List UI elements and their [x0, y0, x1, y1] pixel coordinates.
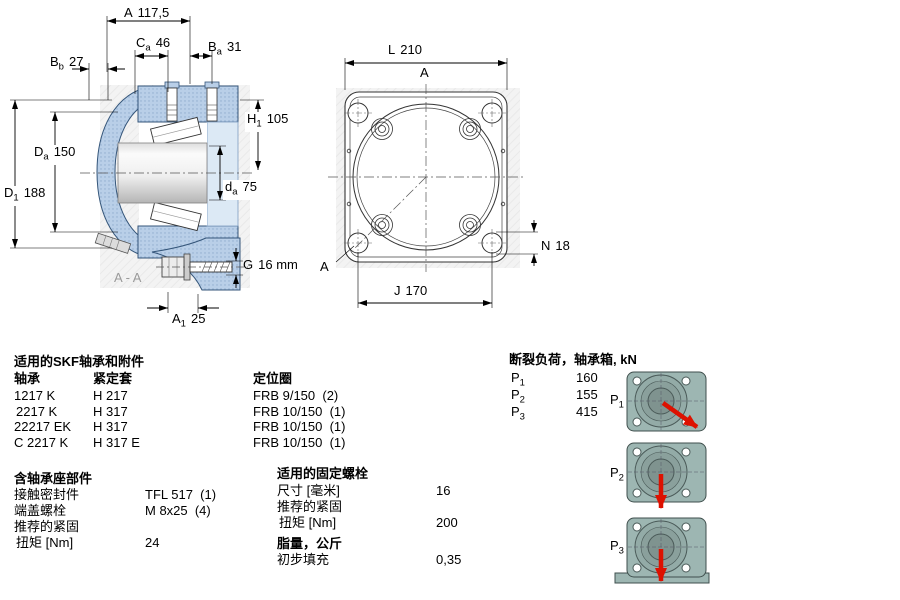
- dim-label-a1: A125: [172, 312, 205, 332]
- load-figure-p2: [627, 443, 706, 508]
- bolt-value: 200: [436, 516, 458, 530]
- load-figure-p1: [627, 372, 706, 431]
- dim-label-da-cap: Da150: [32, 145, 77, 165]
- load-value-p1: 160: [576, 371, 598, 385]
- load-value-p3: 415: [576, 405, 598, 419]
- grease-title: 脂量，公斤: [277, 537, 342, 551]
- bolt-value: 16: [436, 484, 450, 498]
- view-arrow-label-bottom: A: [320, 260, 329, 274]
- figure-label-p1: P1: [610, 393, 624, 413]
- figure-label-p2: P2: [610, 466, 624, 486]
- dim-label-d1: D1188: [2, 186, 47, 206]
- part-label: 扭矩 [Nm]: [16, 536, 73, 550]
- view-arrow-label-top: A: [420, 66, 429, 80]
- ring-cell: FRB 10/150 (1): [253, 436, 346, 450]
- col-header-sleeve: 紧定套: [93, 372, 132, 386]
- dim-label-h1: H1105: [245, 112, 290, 132]
- fixing-bolts-title: 适用的固定螺栓: [277, 467, 368, 481]
- part-label: 端盖螺栓: [14, 504, 66, 518]
- bearings-table-title: 适用的SKF轴承和附件: [14, 355, 144, 369]
- dim-label-a: A117,5: [124, 6, 169, 26]
- bolt-label: 扭矩 [Nm]: [279, 516, 336, 530]
- col-header-bearing: 轴承: [14, 372, 40, 386]
- part-value: TFL 517 (1): [145, 488, 216, 502]
- part-value: 24: [145, 536, 159, 550]
- load-value-p2: 155: [576, 388, 598, 402]
- bearing-cell: 22217 EK: [14, 420, 71, 434]
- dim-label-bb: Bb27: [50, 55, 83, 75]
- sleeve-cell: H 217: [93, 389, 128, 403]
- dim-label-l: L210: [388, 43, 422, 63]
- ring-cell: FRB 9/150 (2): [253, 389, 338, 403]
- grease-label: 初步填充: [277, 553, 329, 567]
- sleeve-cell: H 317: [93, 420, 128, 434]
- dim-label-ca: Ca46: [136, 36, 170, 56]
- section-view-label: A - A: [114, 271, 141, 285]
- load-figure-p3: [615, 518, 709, 583]
- housing-back-wall: [207, 122, 238, 226]
- col-header-ring: 定位圈: [253, 372, 292, 386]
- dim-label-da-shaft: da75: [223, 180, 259, 200]
- bolt-label: 推荐的紧固: [277, 500, 342, 514]
- dim-label-g: G16 mm: [243, 258, 298, 278]
- part-value: M 8x25 (4): [145, 504, 211, 518]
- housing-cap: [138, 86, 238, 122]
- sleeve-cell: H 317: [93, 405, 128, 419]
- bolt-label: 尺寸 [毫米]: [277, 484, 340, 498]
- dim-label-j: J170: [394, 284, 427, 304]
- grease-value: 0,35: [436, 553, 461, 567]
- load-direction-figures: [615, 372, 709, 583]
- figure-label-p3: P3: [610, 539, 624, 559]
- dim-label-n: N18: [541, 239, 570, 259]
- dim-label-ba: Ba31: [208, 40, 241, 60]
- part-label: 接触密封件: [14, 488, 79, 502]
- flange-face-drawing: [328, 58, 538, 308]
- sleeve-cell: H 317 E: [93, 436, 140, 450]
- housing-parts-title: 含轴承座部件: [14, 472, 92, 486]
- load-label-p3: P3: [511, 405, 525, 425]
- part-label: 推荐的紧固: [14, 520, 79, 534]
- bearing-cell: 1217 K: [14, 389, 55, 403]
- bearing-cell: C 2217 K: [14, 436, 68, 450]
- ring-cell: FRB 10/150 (1): [253, 405, 346, 419]
- breaking-loads-title: 断裂负荷，轴承箱, kN: [509, 353, 637, 367]
- ring-cell: FRB 10/150 (1): [253, 420, 346, 434]
- bearing-cell: 2217 K: [16, 405, 57, 419]
- technical-drawing-canvas: [0, 0, 900, 600]
